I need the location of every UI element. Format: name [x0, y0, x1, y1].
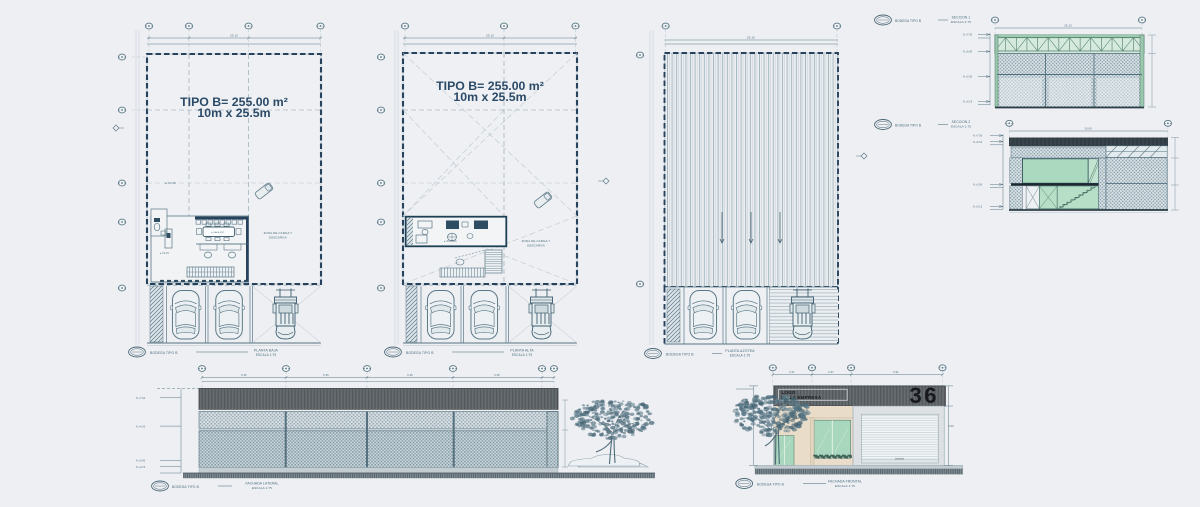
svg-text:DESCARGA: DESCARGA [269, 236, 287, 240]
svg-text:ESCALA 1:75: ESCALA 1:75 [951, 125, 971, 129]
svg-text:6.35: 6.35 [494, 373, 500, 377]
svg-text:6.00: 6.00 [948, 424, 954, 428]
svg-text:ZONA DE CARGA Y: ZONA DE CARGA Y [264, 231, 293, 235]
svg-text:N.+2.90: N.+2.90 [973, 184, 983, 187]
svg-text:BODEGA TIPO B: BODEGA TIPO B [895, 19, 921, 23]
svg-text:ESCALA 1:75: ESCALA 1:75 [835, 484, 855, 488]
svg-text:N.+0.15: N.+0.15 [136, 466, 146, 469]
svg-text:25.10: 25.10 [747, 36, 755, 40]
svg-text:PLANTA ALTA: PLANTA ALTA [510, 349, 534, 353]
svg-text:N.+4.20: N.+4.20 [136, 425, 146, 428]
svg-text:ESCALA 1:75: ESCALA 1:75 [252, 486, 272, 490]
svg-text:PLANTA BAJA: PLANTA BAJA [254, 349, 279, 353]
svg-text:ESCALA 1:75: ESCALA 1:75 [512, 353, 533, 357]
svg-text:N.+7.00: N.+7.00 [973, 135, 983, 138]
svg-text:10m x 25.5m: 10m x 25.5m [197, 106, 270, 120]
svg-text:ZONA DE CARGA Y: ZONA DE CARGA Y [522, 239, 551, 243]
svg-text:6.35: 6.35 [323, 373, 329, 377]
svg-text:25.10: 25.10 [1064, 24, 1072, 28]
svg-text:● ±0.15: ● ±0.15 [165, 181, 176, 185]
svg-text:10m x 25.5m: 10m x 25.5m [453, 90, 526, 104]
svg-text:N.+6.10: N.+6.10 [973, 141, 983, 144]
svg-text:25.10: 25.10 [486, 34, 494, 38]
svg-text:SECCION 1: SECCION 1 [952, 16, 971, 20]
svg-text:BODEGA TIPO B: BODEGA TIPO B [666, 353, 694, 357]
svg-text:SECCION 2: SECCION 2 [952, 120, 971, 124]
svg-text:BODEGA TIPO B: BODEGA TIPO B [150, 351, 178, 355]
svg-text:N.+7.00: N.+7.00 [136, 397, 146, 400]
svg-text:ESCALA 1:75: ESCALA 1:75 [256, 353, 277, 357]
svg-text:BODEGA TIPO B: BODEGA TIPO B [406, 351, 434, 355]
svg-text:BODEGA TIPO B: BODEGA TIPO B [172, 485, 200, 489]
svg-text:N.+0.60: N.+0.60 [136, 460, 146, 463]
svg-text:2.97: 2.97 [789, 370, 795, 374]
svg-text:FACHADA LATERAL: FACHADA LATERAL [245, 482, 278, 486]
svg-text:6.35: 6.35 [407, 373, 413, 377]
svg-text:N.+7.00: N.+7.00 [963, 34, 973, 37]
svg-text:ESCALA 1:75: ESCALA 1:75 [951, 20, 971, 24]
svg-text:36: 36 [909, 383, 938, 408]
svg-text:● ±0.15: ● ±0.15 [160, 252, 169, 255]
svg-text:25.10: 25.10 [230, 34, 238, 38]
svg-text:BODEGA TIPO B: BODEGA TIPO B [895, 124, 921, 128]
svg-text:N.+2.90: N.+2.90 [963, 76, 973, 79]
svg-text:FACHADA FRONTAL: FACHADA FRONTAL [828, 480, 862, 484]
svg-text:DESCARGA: DESCARGA [527, 244, 545, 248]
svg-text:10.00: 10.00 [1084, 127, 1092, 131]
svg-text:2.97: 2.97 [828, 370, 834, 374]
svg-text:N.+0.15: N.+0.15 [973, 206, 983, 209]
svg-text:ESCALA 1:75: ESCALA 1:75 [730, 354, 751, 358]
svg-text:● OFICINA: ● OFICINA [444, 240, 457, 243]
svg-text:PLANTA AZOTEA: PLANTA AZOTEA [725, 349, 755, 353]
svg-text:● SALA JNT.: ● SALA JNT. [211, 231, 225, 234]
svg-text:N.+0.15: N.+0.15 [963, 101, 973, 104]
svg-text:6.35: 6.35 [241, 373, 247, 377]
svg-text:6.91: 6.91 [893, 370, 899, 374]
svg-text:BODEGA TIPO B: BODEGA TIPO B [757, 483, 785, 487]
svg-text:N.+5.80: N.+5.80 [963, 51, 973, 54]
